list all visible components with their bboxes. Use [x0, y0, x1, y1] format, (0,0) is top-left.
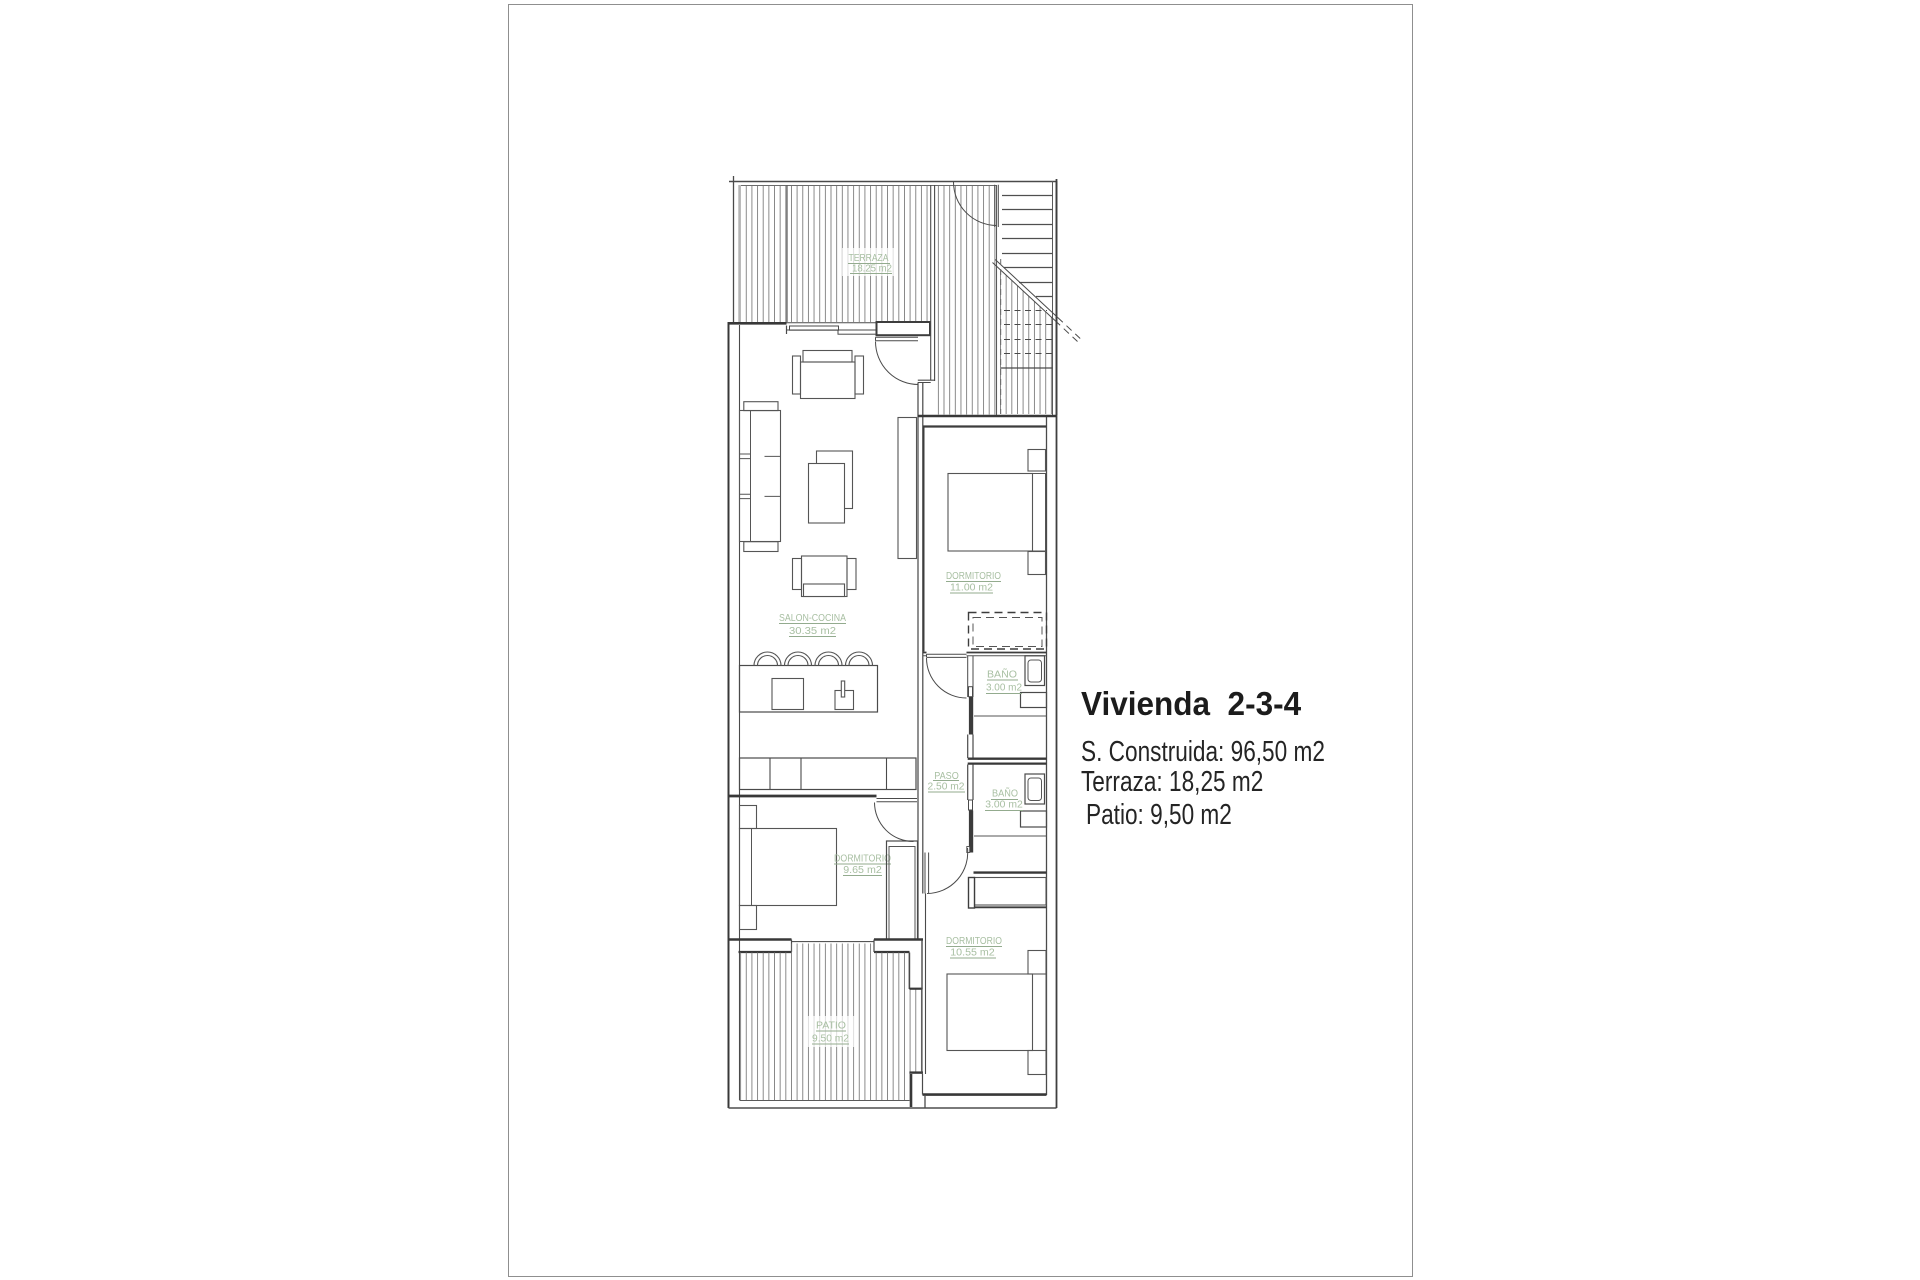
svg-text:BAÑO: BAÑO: [992, 787, 1018, 800]
svg-text:DORMITORIO: DORMITORIO: [946, 936, 1002, 947]
svg-text:3.00 m2: 3.00 m2: [985, 800, 1023, 811]
svg-text:TERRAZA: TERRAZA: [849, 253, 889, 264]
svg-text:DORMITORIO: DORMITORIO: [834, 854, 891, 865]
svg-text:3.00 m2: 3.00 m2: [986, 683, 1022, 694]
svg-text:10.55 m2: 10.55 m2: [950, 948, 995, 959]
svg-text:PATIO: PATIO: [816, 1021, 846, 1032]
svg-text:BAÑO: BAÑO: [987, 668, 1017, 681]
svg-text:9.65 m2: 9.65 m2: [843, 865, 882, 876]
svg-text:18.25 m2: 18.25 m2: [852, 264, 892, 275]
svg-text:DORMITORIO: DORMITORIO: [946, 571, 1001, 582]
svg-text:SALON-COCINA: SALON-COCINA: [779, 613, 846, 624]
svg-text:30.35 m2: 30.35 m2: [789, 626, 836, 637]
svg-text:11.00 m2: 11.00 m2: [950, 583, 993, 594]
svg-text:9.50 m2: 9.50 m2: [812, 1034, 849, 1045]
svg-text:2.50 m2: 2.50 m2: [928, 782, 965, 793]
